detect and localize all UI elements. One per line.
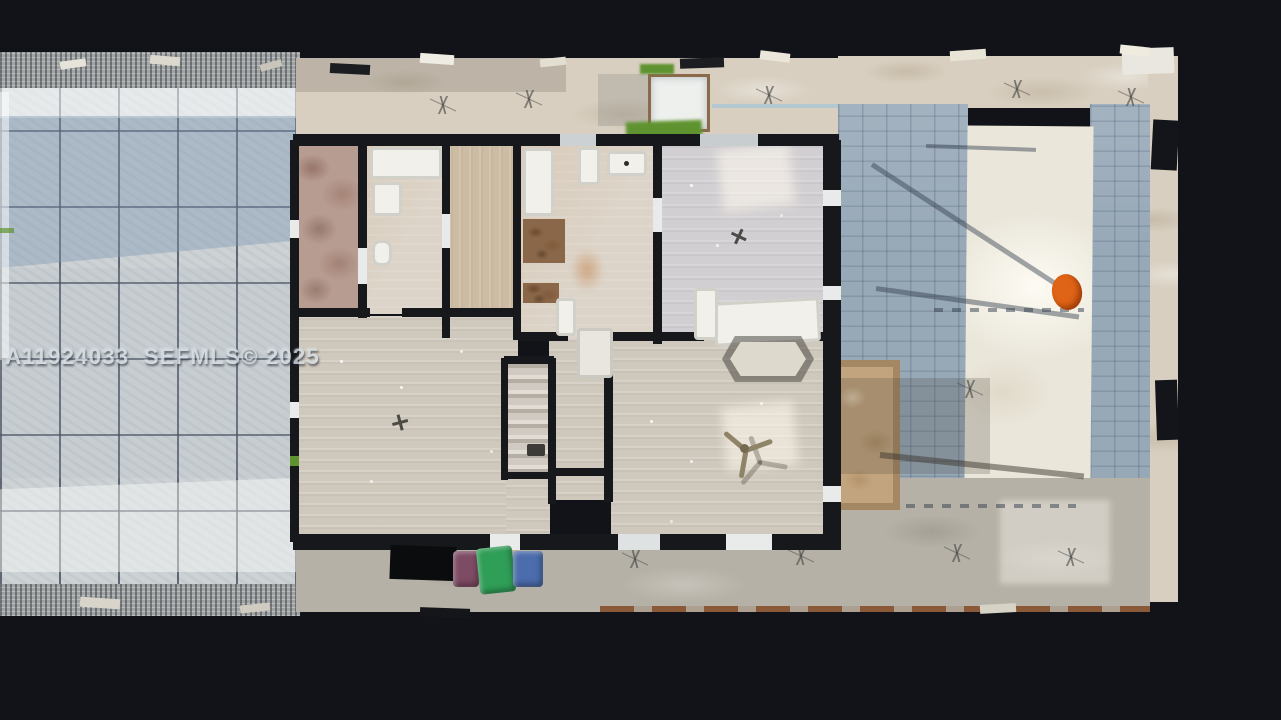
- aerial-photo: A11924033 SEFMLS© 2025: [0, 0, 1281, 720]
- debris-chip: [240, 602, 271, 613]
- debris-chip: [259, 59, 282, 71]
- debris-chip: [60, 58, 87, 70]
- debris-chip: [1120, 44, 1151, 56]
- mls-watermark: A11924033 SEFMLS© 2025: [5, 344, 320, 370]
- debris-chip: [80, 597, 121, 610]
- debris-chip-dark: [1155, 380, 1179, 441]
- debris-chip: [760, 50, 791, 63]
- debris-chip: [420, 53, 455, 65]
- debris-chip: [540, 57, 567, 68]
- debris-chip-dark: [420, 607, 470, 618]
- debris-chip-dark: [1151, 119, 1180, 170]
- debris-chip-dark: [680, 57, 724, 69]
- debris-chip-dark: [330, 63, 370, 75]
- debris-chip: [950, 49, 987, 61]
- debris-chip: [150, 55, 181, 67]
- debris-chip: [980, 603, 1016, 614]
